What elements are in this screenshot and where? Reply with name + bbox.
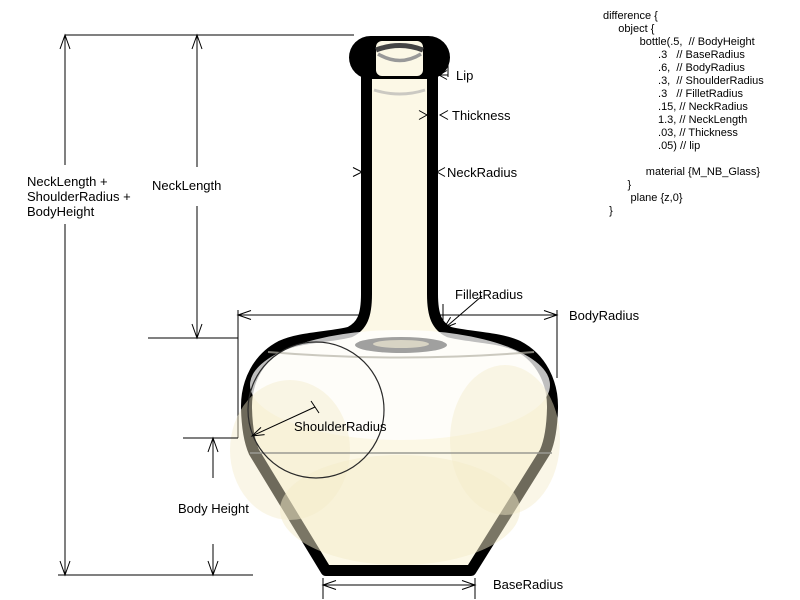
neck-base-shadow-core bbox=[373, 340, 429, 348]
bottle-diagram: NeckLength + ShoulderRadius + BodyHeight… bbox=[0, 0, 800, 600]
label-thickness: Thickness bbox=[452, 108, 511, 123]
glass-shade-bottom bbox=[280, 455, 520, 565]
label-lip: Lip bbox=[456, 68, 473, 83]
label-fillet-radius: FilletRadius bbox=[455, 287, 523, 302]
label-shoulder-radius: ShoulderRadius bbox=[294, 419, 387, 434]
label-neck-radius: NeckRadius bbox=[447, 165, 517, 180]
label-neck-length: NeckLength bbox=[152, 178, 221, 193]
label-base-radius: BaseRadius bbox=[493, 577, 563, 592]
label-body-height: Body Height bbox=[178, 501, 249, 516]
arrowhead-left-icon bbox=[437, 168, 445, 177]
base-radius-dimension bbox=[323, 578, 475, 599]
arrowhead-left-icon bbox=[440, 111, 448, 120]
label-composite-height: NeckLength + ShoulderRadius + BodyHeight bbox=[27, 174, 131, 219]
label-body-radius: BodyRadius bbox=[569, 308, 639, 323]
composite-height-dimension bbox=[60, 35, 70, 575]
arrowhead-right-icon bbox=[353, 168, 362, 177]
povray-code-block: difference { object { bottle(.5, // Body… bbox=[603, 10, 764, 218]
